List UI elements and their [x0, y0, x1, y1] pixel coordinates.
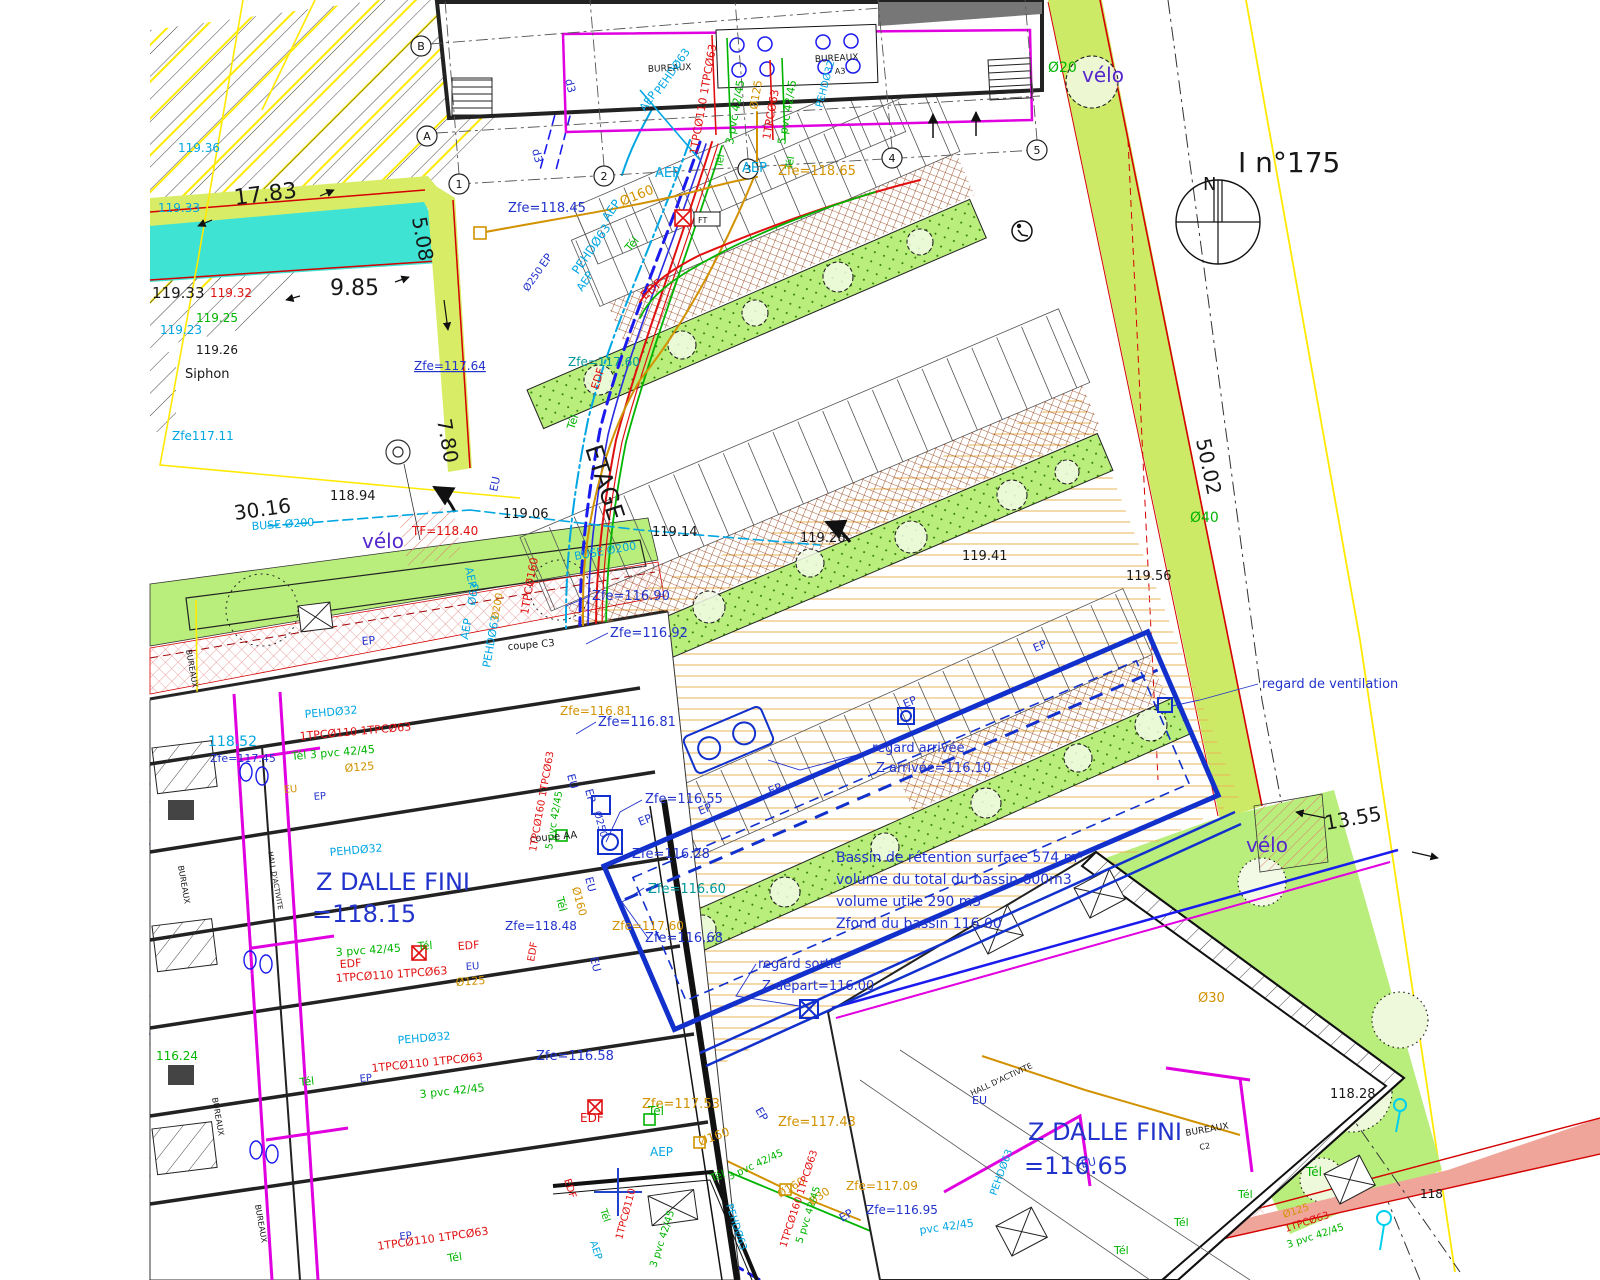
- map-label: =116.65: [1024, 1152, 1128, 1180]
- site-plan-drawing: 12345AB I n°175N119.36119.3317.835.089.8…: [0, 0, 1600, 1280]
- map-label: EP: [359, 1073, 372, 1085]
- map-label: Zfe117.11: [172, 429, 234, 443]
- map-label: vélo: [1246, 833, 1288, 857]
- slab-level-left: Z DALLE FINI: [316, 868, 470, 896]
- map-label: EU: [972, 1094, 987, 1107]
- map-label: EU: [283, 784, 298, 796]
- map-label: 119.26: [196, 343, 238, 357]
- map-label: Z arrivée=116.10: [876, 761, 991, 776]
- map-label: Tél: [713, 153, 727, 169]
- map-label: 119.23: [160, 323, 202, 337]
- map-label: Ø250: [521, 265, 546, 294]
- map-label: Tél: [1113, 1244, 1129, 1257]
- map-label: TF=118.40: [411, 524, 478, 538]
- map-label: Tél: [298, 1075, 315, 1090]
- map-label: Z départ=116.00: [762, 979, 874, 994]
- map-label: Ø160: [618, 183, 656, 210]
- map-label: Ø40: [1190, 510, 1219, 526]
- map-label: Zfe=117.60: [568, 355, 640, 369]
- map-label: EDF: [580, 1111, 604, 1125]
- map-label: Tél: [1237, 1188, 1253, 1201]
- map-label: Tél: [1173, 1216, 1189, 1229]
- map-label: EDF: [339, 957, 362, 971]
- map-label: Tél: [647, 1104, 664, 1118]
- map-label: 119.36: [178, 141, 220, 155]
- plan-number: I n°175: [1238, 146, 1340, 179]
- basin-note-line4: Zfond du bassin 116.00: [836, 916, 1002, 932]
- map-label: Zfe=117.45: [210, 752, 276, 765]
- map-label: EP: [537, 251, 556, 270]
- grid-bubble-B: B: [411, 36, 431, 56]
- map-label: AEP: [742, 161, 767, 176]
- map-label: Tél: [446, 1250, 463, 1265]
- map-label: Zfe=116.68: [645, 931, 723, 946]
- accessible-parking-icon: [1012, 221, 1032, 241]
- outlet-manhole-label: regard sortie: [758, 957, 842, 972]
- map-label: AEP: [458, 617, 475, 640]
- map-label: 119.41: [962, 549, 1008, 564]
- site-plan-canvas: 12345AB I n°175N119.36119.3317.835.089.8…: [0, 0, 1600, 1280]
- map-label: 116.24: [156, 1049, 198, 1063]
- grid-bubble-label: B: [417, 40, 425, 53]
- grid-bubble-4: 4: [882, 148, 902, 168]
- grid-bubble-label: 5: [1034, 144, 1041, 157]
- map-label: Zfe=116.55: [645, 792, 723, 807]
- map-label: A3: [835, 66, 846, 76]
- map-label: Zfe=116.58: [536, 1049, 614, 1064]
- map-label: 119.26: [800, 531, 846, 546]
- map-label: EP: [361, 634, 376, 648]
- map-label: EU: [487, 475, 503, 492]
- grid-bubble-label: 2: [601, 170, 608, 183]
- map-label: Zfe=117.64: [414, 359, 486, 373]
- map-label: 118: [1420, 1187, 1443, 1201]
- map-label: Zfe=116.60: [648, 882, 726, 897]
- grid-bubble-5: 5: [1027, 140, 1047, 160]
- map-label: C2: [1199, 1141, 1211, 1152]
- map-label: 119.06: [503, 507, 549, 522]
- map-label: 118.52: [208, 734, 257, 750]
- stairs: [452, 78, 492, 116]
- map-label: Tél: [622, 234, 642, 254]
- map-label: Zfe=118.65: [778, 164, 856, 179]
- map-label: =118.15: [312, 900, 416, 928]
- map-label: Zfe=116.95: [866, 1203, 938, 1217]
- map-label: 119.33: [158, 201, 200, 215]
- stairs: [988, 58, 1032, 100]
- map-label: EP: [313, 791, 326, 803]
- map-label: Ø125: [344, 759, 375, 775]
- survey-marker: [386, 440, 410, 464]
- north-compass: [1176, 180, 1260, 264]
- map-label: 118.94: [330, 489, 376, 504]
- map-label: EP: [837, 1206, 856, 1224]
- map-label: Zfe=118.45: [508, 201, 586, 216]
- grid-bubble-label: A: [423, 130, 431, 143]
- map-label: FT: [698, 216, 707, 225]
- grid-bubble-label: 1: [456, 178, 463, 191]
- map-label: EP: [399, 1230, 413, 1243]
- map-label: Zfe=116.92: [610, 626, 688, 641]
- inlet-manhole-label: regard arrivée: [872, 741, 965, 756]
- map-label: Tél: [1305, 1165, 1322, 1179]
- map-label: PEHDØ63: [569, 221, 614, 276]
- map-label: EP: [752, 1105, 770, 1124]
- map-label: Tél: [416, 939, 433, 953]
- map-label: 118.28: [1330, 1087, 1376, 1102]
- map-label: 119.56: [1126, 569, 1172, 584]
- map-label: 9.85: [330, 276, 379, 301]
- map-label: Zfe=117.09: [846, 1179, 918, 1193]
- map-label: Siphon: [185, 367, 230, 382]
- map-label: 119.32: [210, 286, 252, 300]
- map-label: EU: [465, 961, 479, 973]
- map-label: 119.33: [152, 284, 205, 302]
- map-label: Zfe=117.43: [778, 1115, 856, 1130]
- grid-bubble-2: 2: [594, 166, 614, 186]
- map-label: Ø20: [1048, 60, 1077, 76]
- map-label: Ø30: [1198, 991, 1225, 1006]
- map-label: AEP: [655, 166, 680, 181]
- north-label: N: [1203, 174, 1216, 195]
- grid-bubble-A: A: [417, 126, 437, 146]
- map-label: AEP: [650, 1145, 673, 1159]
- map-label: vélo: [1082, 63, 1124, 87]
- map-label: 119.25: [196, 311, 238, 325]
- basin-note-line1: Bassin de rétention surface 574 m²: [836, 850, 1083, 866]
- grid-bubble-1: 1: [449, 174, 469, 194]
- slab-level-right: Z DALLE FINI: [1028, 1118, 1182, 1146]
- grid-bubble-label: 4: [889, 152, 896, 165]
- map-label: Zfe=116.81: [598, 715, 676, 730]
- map-label: vélo: [362, 529, 404, 553]
- map-label: Zfe=118.48: [505, 919, 577, 933]
- map-label: Zfe=116.90: [592, 589, 670, 604]
- flow-arrows: [933, 112, 976, 138]
- map-label: Zfe=116.28: [632, 847, 710, 862]
- vent-manhole-label: regard de ventilation: [1262, 677, 1398, 692]
- basin-note-line2: volume du total du bassin 600m3: [836, 872, 1072, 888]
- basin-note-line3: volume utile 290 m3: [836, 894, 981, 910]
- map-label: EDF: [457, 939, 480, 953]
- map-label: Ø125: [455, 974, 485, 989]
- map-label: 119.14: [652, 525, 698, 540]
